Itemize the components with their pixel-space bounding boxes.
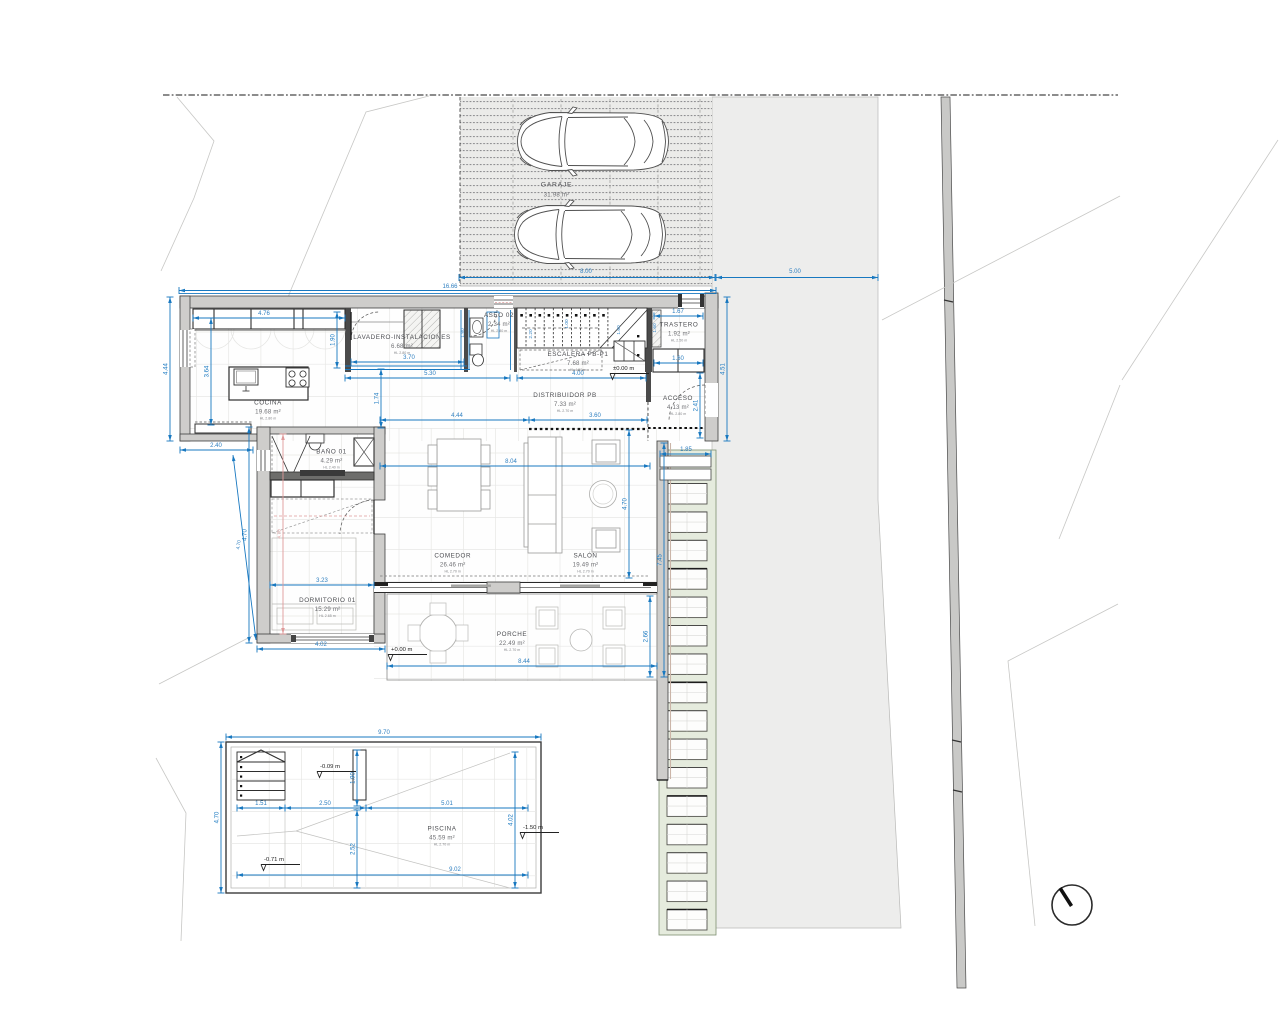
svg-text:8.00: 8.00 [580, 269, 592, 275]
svg-text:ACCESO: ACCESO [663, 395, 693, 402]
svg-text:19.49 m²: 19.49 m² [573, 561, 599, 568]
svg-text:-1.50 m: -1.50 m [523, 825, 543, 831]
svg-text:1.92 m²: 1.92 m² [668, 331, 690, 338]
svg-text:1.60: 1.60 [672, 356, 684, 362]
svg-text:4.76: 4.76 [258, 311, 270, 317]
svg-text:4.44: 4.44 [451, 413, 463, 419]
svg-text:1.90: 1.90 [351, 772, 357, 784]
svg-text:HL 2.50 m: HL 2.50 m [671, 339, 687, 343]
svg-text:2.40: 2.40 [210, 443, 222, 449]
svg-text:5.30: 5.30 [424, 371, 436, 377]
svg-text:+0.00 m: +0.00 m [391, 647, 413, 653]
svg-text:5.01: 5.01 [441, 801, 453, 807]
svg-text:HL 2.80 m: HL 2.80 m [260, 417, 276, 421]
svg-text:ESCALERA PB-P1: ESCALERA PB-P1 [548, 351, 609, 358]
svg-text:1.90: 1.90 [331, 334, 337, 346]
svg-text:4.29 m²: 4.29 m² [320, 457, 342, 464]
svg-text:-0.71 m: -0.71 m [264, 857, 284, 863]
svg-text:HL 2.65 m: HL 2.65 m [319, 614, 335, 618]
svg-text:2.66: 2.66 [644, 630, 650, 642]
svg-text:SALÓN: SALÓN [573, 551, 597, 560]
svg-text:5.00: 5.00 [789, 269, 801, 275]
svg-text:1.67: 1.67 [672, 309, 684, 315]
svg-text:HL 2.70 m: HL 2.70 m [434, 843, 450, 847]
svg-text:6.68 m²: 6.68 m² [391, 343, 413, 350]
svg-text:45.59 m²: 45.59 m² [429, 834, 455, 841]
svg-text:1.51: 1.51 [255, 801, 267, 807]
svg-text:LAVADERO-INSTALACIONES: LAVADERO-INSTALACIONES [353, 334, 450, 341]
svg-text:HL 2.80 m: HL 2.80 m [394, 351, 410, 355]
svg-text:±0.00 m: ±0.00 m [613, 366, 634, 372]
svg-text:7.68 m²: 7.68 m² [567, 360, 589, 367]
svg-text:4.44: 4.44 [164, 363, 170, 375]
svg-text:2.41: 2.41 [694, 399, 700, 411]
svg-text:COCINA: COCINA [254, 400, 282, 407]
svg-text:7.33 m²: 7.33 m² [554, 401, 576, 408]
svg-text:HL 2.70 m: HL 2.70 m [557, 409, 573, 413]
svg-text:PISCINA: PISCINA [427, 826, 456, 833]
svg-text:HL 4.50 m: HL 4.50 m [570, 368, 586, 372]
svg-text:7.45: 7.45 [658, 554, 664, 566]
svg-text:4.70: 4.70 [215, 811, 221, 823]
svg-text:HL 2.70 m: HL 2.70 m [577, 570, 593, 574]
svg-text:3.60: 3.60 [589, 413, 601, 419]
svg-text:HL 2.70 m: HL 2.70 m [504, 648, 520, 652]
svg-text:HL 2.80 m: HL 2.80 m [670, 412, 686, 416]
svg-text:3.23: 3.23 [316, 578, 328, 584]
svg-text:-0.09 m: -0.09 m [320, 764, 340, 770]
svg-text:DISTRIBUIDOR PB: DISTRIBUIDOR PB [533, 392, 597, 399]
svg-text:4.70: 4.70 [235, 540, 242, 550]
svg-text:BAÑO 01: BAÑO 01 [316, 447, 346, 456]
svg-text:2.50: 2.50 [319, 801, 331, 807]
svg-text:8.44: 8.44 [518, 659, 530, 665]
svg-text:1.74: 1.74 [375, 392, 381, 404]
svg-text:31.98 m²: 31.98 m² [544, 192, 570, 199]
svg-text:26.46 m²: 26.46 m² [440, 561, 466, 568]
svg-text:4.51: 4.51 [721, 363, 727, 375]
svg-text:9.70: 9.70 [378, 730, 390, 736]
svg-text:4.13 m²: 4.13 m² [667, 404, 689, 411]
svg-text:2.52: 2.52 [351, 843, 357, 855]
svg-text:9.02: 9.02 [449, 867, 461, 873]
svg-text:16.66: 16.66 [442, 284, 458, 290]
svg-text:22.49 m²: 22.49 m² [499, 640, 525, 647]
svg-text:HL 2.40 m: HL 2.40 m [323, 466, 339, 470]
svg-text:2.20: 2.20 [528, 329, 534, 339]
svg-text:2.34 m²: 2.34 m² [488, 321, 510, 328]
svg-text:1.60: 1.60 [616, 325, 622, 335]
svg-text:1.00: 1.00 [564, 319, 570, 329]
svg-text:8.04: 8.04 [505, 459, 517, 465]
svg-text:3.64: 3.64 [205, 365, 211, 377]
svg-text:PORCHE: PORCHE [497, 631, 527, 638]
svg-text:ASEO 02: ASEO 02 [484, 312, 514, 319]
svg-text:GARAJE: GARAJE [541, 181, 572, 188]
svg-text:COMEDOR: COMEDOR [434, 553, 471, 560]
svg-text:1.85: 1.85 [680, 447, 692, 453]
svg-text:4.70: 4.70 [277, 529, 283, 539]
svg-text:4.02: 4.02 [315, 642, 327, 648]
svg-text:1.60: 1.60 [652, 323, 658, 333]
svg-text:HL 2.80 m: HL 2.80 m [491, 329, 507, 333]
svg-text:15.29 m²: 15.29 m² [315, 606, 341, 613]
svg-text:3.70: 3.70 [403, 355, 415, 361]
svg-text:HL 2.70 m: HL 2.70 m [444, 570, 460, 574]
svg-text:4.70: 4.70 [623, 498, 629, 510]
svg-text:4.02: 4.02 [509, 814, 515, 826]
svg-text:DORMITORIO 01: DORMITORIO 01 [299, 597, 356, 604]
svg-text:19.68 m²: 19.68 m² [255, 408, 281, 415]
svg-text:1.80: 1.80 [460, 328, 466, 338]
svg-text:TRASTERO: TRASTERO [660, 322, 699, 329]
